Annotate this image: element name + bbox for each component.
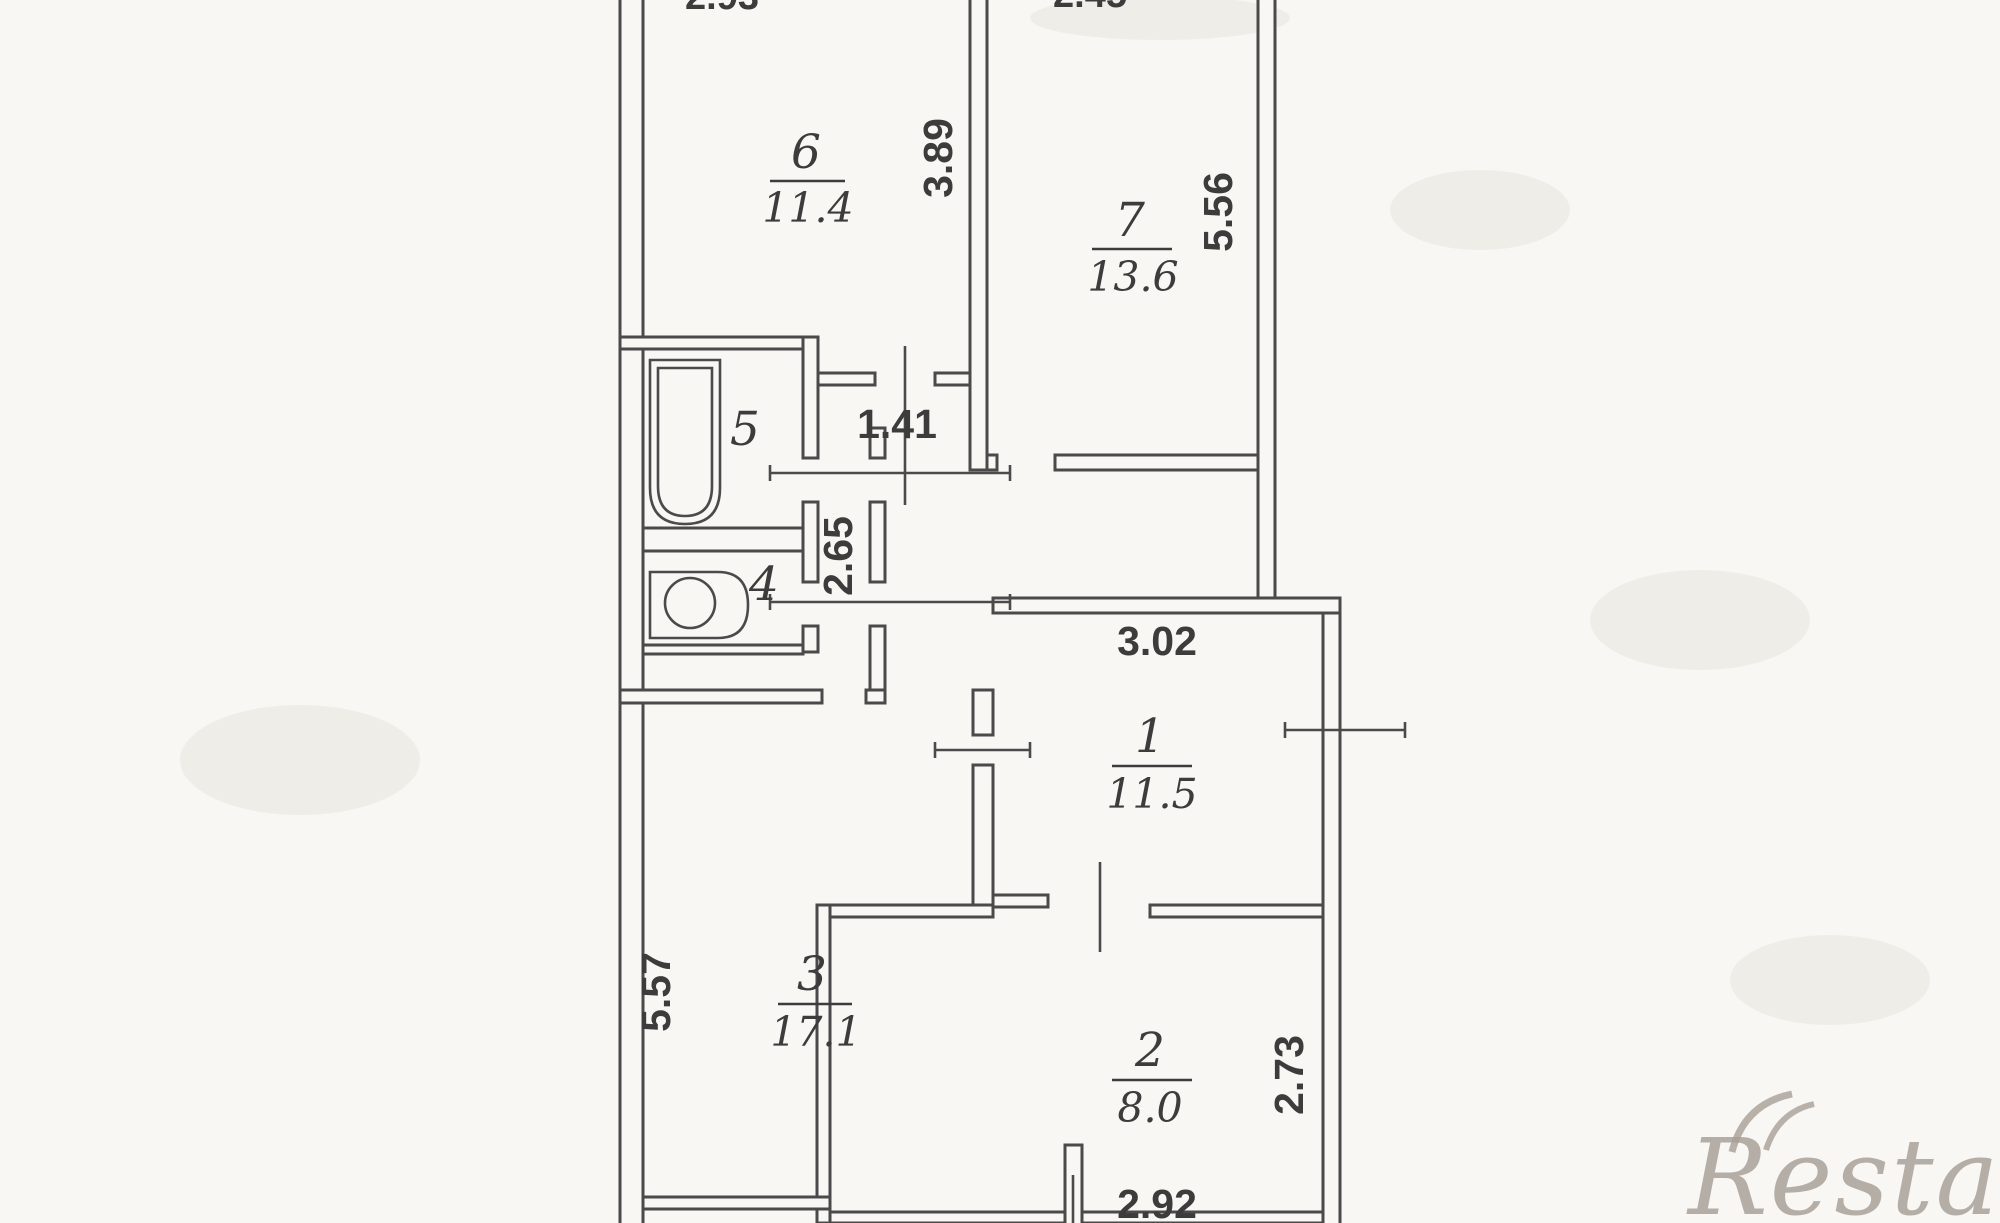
wall-bath-right bbox=[803, 626, 818, 652]
wall-room6-room7 bbox=[970, 0, 987, 470]
room-3-number: 3 bbox=[797, 947, 827, 1002]
sink-bowl-icon bbox=[665, 578, 715, 628]
wall-outer-right-upper bbox=[1258, 0, 1275, 613]
room-6-number: 6 bbox=[791, 125, 821, 180]
wall-nook-top bbox=[818, 373, 875, 385]
wall-bath-right bbox=[803, 337, 818, 458]
room-1-number: 1 bbox=[1135, 709, 1165, 764]
wall-room7-bottom bbox=[1055, 455, 1258, 470]
room-3-area: 17.1 bbox=[770, 1008, 861, 1056]
wall-room1-top bbox=[993, 598, 1340, 613]
wall-room3-room1 bbox=[973, 690, 993, 735]
paper-smudge bbox=[180, 705, 420, 815]
room-5-number: 5 bbox=[730, 402, 760, 457]
wall-room7-bottom bbox=[987, 455, 997, 470]
dim-top-left-partial: 2.93 bbox=[685, 0, 759, 18]
floorplan-scan: 6 11.4 7 13.6 5 4 1 11.5 3 17.1 2 8.0 3.… bbox=[0, 0, 2000, 1223]
dim-room2-depth: 2.73 bbox=[1266, 1035, 1312, 1115]
dim-top-right-partial: 2.45 bbox=[1053, 0, 1127, 16]
watermark: Restate bbox=[1686, 1094, 2000, 1223]
wall-room6-bottom bbox=[620, 337, 818, 349]
wall-room3-bottom bbox=[643, 1197, 830, 1209]
watermark-text: Restate bbox=[1686, 1116, 2000, 1223]
dim-room6-depth: 3.89 bbox=[915, 118, 961, 198]
paper-smudge bbox=[1590, 570, 1810, 670]
wall-room3-top bbox=[620, 690, 822, 703]
dim-room3-depth: 5.57 bbox=[633, 952, 679, 1032]
dim-corridor-depth: 2.65 bbox=[815, 516, 861, 596]
dim-nook-width: 1.41 bbox=[857, 401, 937, 447]
room-2-number: 2 bbox=[1134, 1023, 1165, 1078]
wall-outer-right-lower bbox=[1323, 598, 1340, 1223]
dim-room2-width: 2.92 bbox=[1117, 1181, 1197, 1223]
bathtub-inner-icon bbox=[658, 368, 712, 516]
room-2-area: 8.0 bbox=[1117, 1084, 1182, 1132]
room-6-area: 11.4 bbox=[762, 184, 853, 232]
wall-room4-bottom bbox=[643, 645, 803, 654]
wall-room2-bottom bbox=[830, 1212, 1065, 1223]
wall-room5-room4 bbox=[643, 528, 803, 551]
wall-outer-left bbox=[620, 0, 643, 1223]
room-7-number: 7 bbox=[1115, 193, 1145, 248]
room-4-number: 4 bbox=[748, 557, 779, 612]
dim-hall-width: 3.02 bbox=[1117, 618, 1197, 664]
wall-nook-top bbox=[935, 373, 970, 385]
wall-room3-top bbox=[866, 690, 885, 703]
scan-artifacts bbox=[180, 0, 1930, 1025]
wall-corridor bbox=[870, 502, 885, 582]
paper-smudge bbox=[1390, 170, 1570, 250]
wall-room1-room2 bbox=[1150, 905, 1323, 917]
floorplan-drawing: 6 11.4 7 13.6 5 4 1 11.5 3 17.1 2 8.0 3.… bbox=[0, 0, 2000, 1223]
room-7-area: 13.6 bbox=[1087, 253, 1178, 301]
wall-room1-room2 bbox=[993, 895, 1048, 907]
dim-room7-depth: 5.56 bbox=[1195, 172, 1241, 252]
room-1-area: 11.5 bbox=[1106, 770, 1197, 818]
wall-room3-room2-jog bbox=[817, 905, 993, 917]
wall-room3-room1 bbox=[973, 765, 993, 917]
paper-smudge bbox=[1730, 935, 1930, 1025]
